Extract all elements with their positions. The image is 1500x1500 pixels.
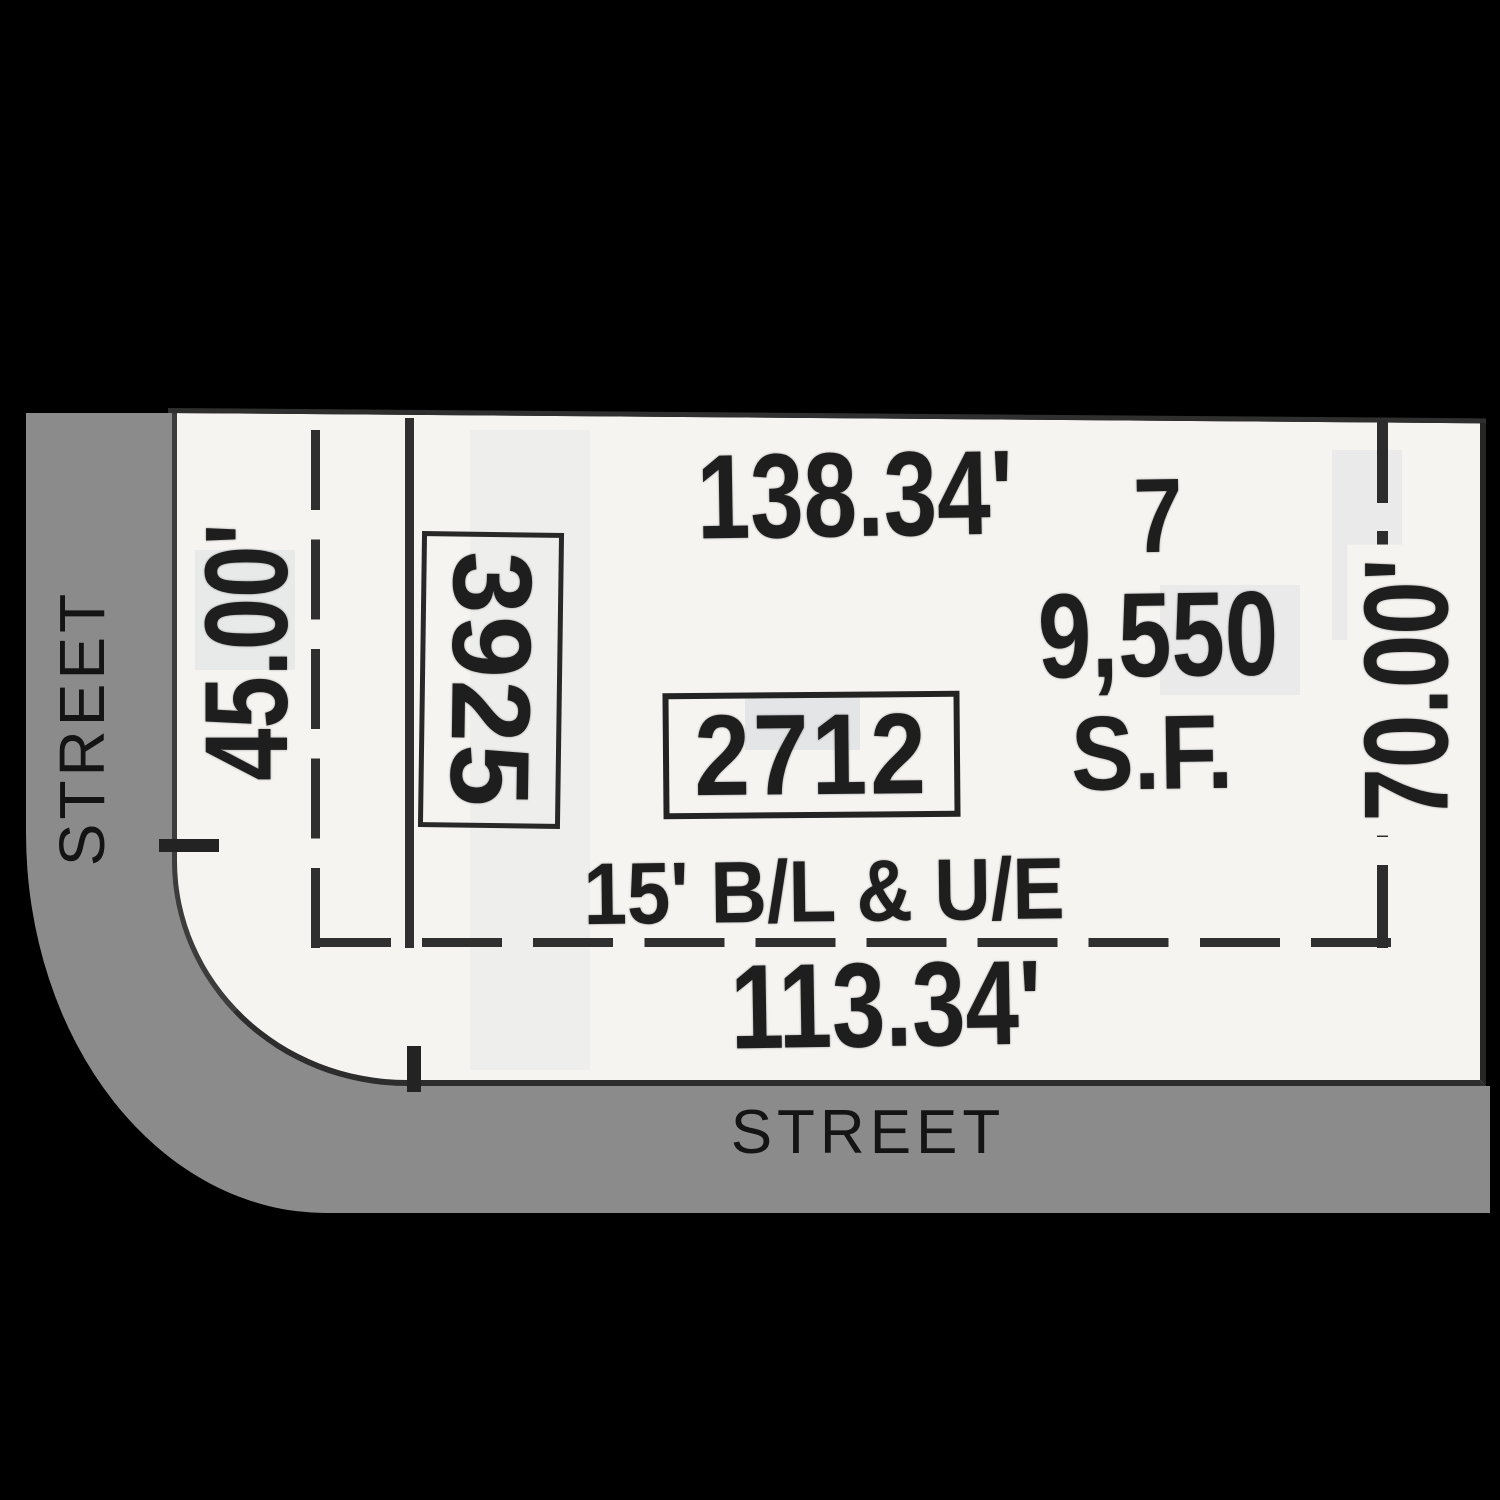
dimension-bottom: 113.34' [635, 942, 1137, 1070]
scan-right-edge [1486, 413, 1500, 1086]
dimension-right: 70.00' [1348, 544, 1468, 835]
address-box-vertical: 3925 [418, 531, 564, 829]
dimension-right-wrap: 70.00' [1258, 640, 1500, 740]
west-lot-line [405, 418, 414, 948]
address-box-vertical-text: 3925 [433, 551, 549, 810]
street-left-label-wrap: STREET [0, 678, 232, 778]
easement-label: 15' B/L & U/E [543, 844, 1104, 938]
street-bottom-label: STREET [668, 1102, 1068, 1164]
street-left-label: STREET [50, 590, 114, 866]
dimension-tick-west [159, 839, 219, 852]
address-box-horizontal-text: 2712 [694, 696, 929, 813]
scan-top-edge [168, 346, 1500, 423]
plat-map: 138.34' 7 9,550 S.F. 15' B/L & U/E 113.3… [0, 0, 1500, 1500]
dimension-tick-south [407, 1046, 421, 1092]
lot-number: 7 [1057, 461, 1259, 570]
address-box-horizontal: 2712 [662, 691, 960, 820]
